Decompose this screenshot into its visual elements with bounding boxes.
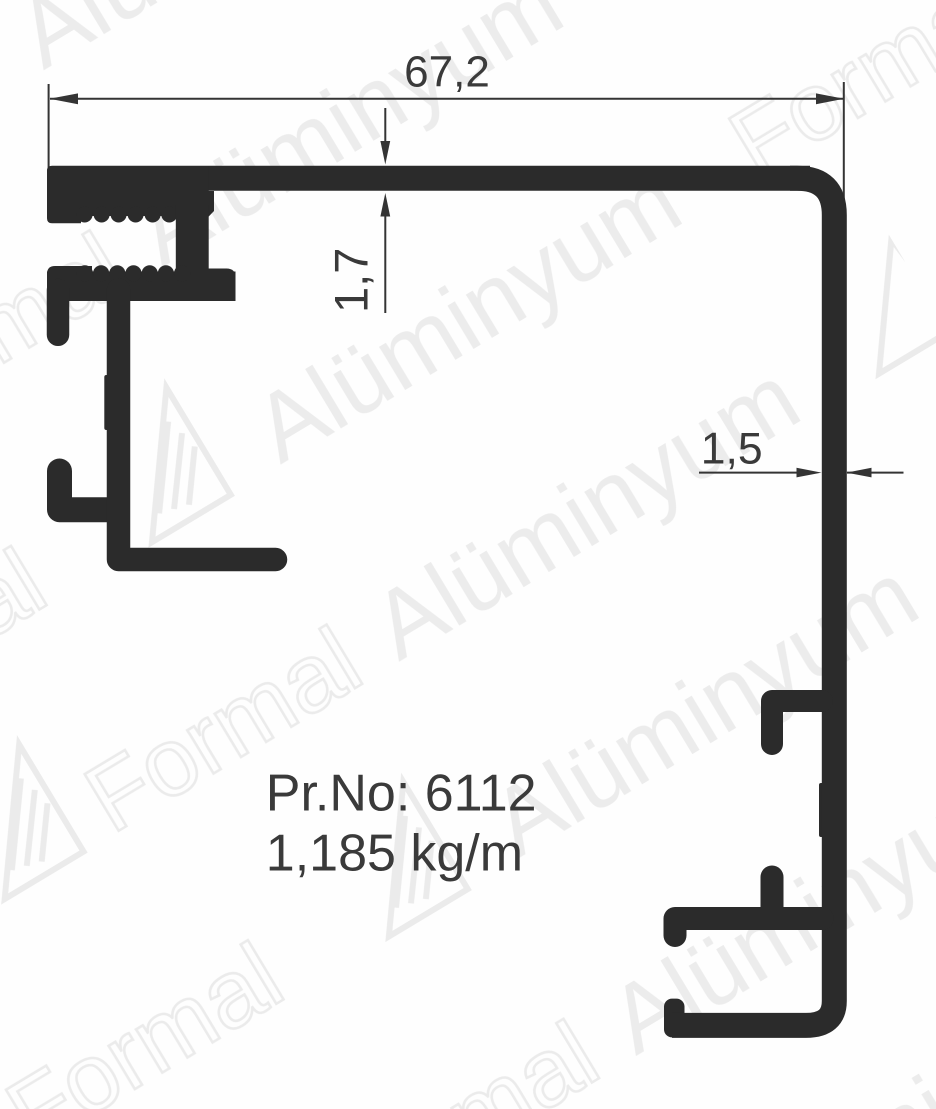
- svg-text:1,5: 1,5: [701, 425, 763, 474]
- svg-text:1,185 kg/m: 1,185 kg/m: [266, 825, 523, 883]
- svg-text:Pr.No: 6112: Pr.No: 6112: [266, 765, 537, 823]
- svg-text:1,7: 1,7: [325, 248, 378, 313]
- svg-text:67,2: 67,2: [404, 48, 490, 97]
